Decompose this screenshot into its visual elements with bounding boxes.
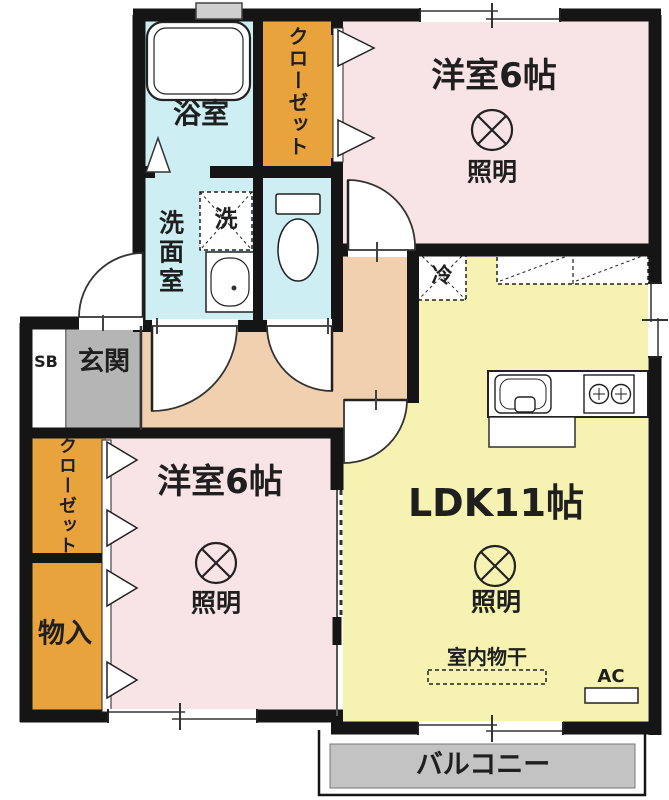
storage-label: 物入 — [38, 621, 92, 648]
ldk-light-label: 照明 — [471, 590, 521, 615]
corridor-arm-area — [340, 250, 412, 362]
shoe-box-label: SB — [34, 354, 58, 370]
ac-unit — [585, 688, 638, 703]
floorplan: 洋室6帖 照明 洋室6帖 照明 LDK11帖 照明 浴室 洗面室 洗 冷 クロー… — [0, 0, 669, 800]
ac-label: AC — [597, 668, 624, 686]
washer-label: 洗 — [215, 209, 238, 232]
upper-cabinets — [497, 252, 648, 284]
balcony-label: バルコニー — [416, 752, 550, 779]
indoor-drying-label: 室内物干 — [447, 647, 527, 667]
entrance-door — [79, 253, 143, 317]
bathtub — [147, 22, 250, 100]
bedroom-top-light-label: 照明 — [467, 160, 517, 185]
fridge-label: 冷 — [432, 266, 453, 287]
bedroom-left-light-label: 照明 — [191, 591, 241, 616]
bathroom-vent — [196, 3, 242, 19]
bedroom-left-label: 洋室6帖 — [157, 465, 283, 499]
counter-return — [489, 417, 575, 447]
closet-left-label: クローゼット — [57, 436, 75, 556]
toilet-fixture — [276, 194, 320, 281]
entrance-area — [66, 326, 140, 432]
bedroom-top-label: 洋室6帖 — [431, 59, 557, 93]
closet-top-label: クローゼット — [287, 26, 307, 158]
washroom-label: 洗面室 — [158, 210, 183, 297]
bathroom-label: 浴室 — [173, 100, 229, 128]
entrance-label: 玄関 — [78, 349, 130, 375]
ldk-label: LDK11帖 — [408, 484, 584, 522]
washroom-sink — [206, 252, 254, 312]
floorplan-drawing — [0, 0, 669, 800]
kitchen-faucet — [515, 397, 535, 412]
partition-bedroom2-ldk — [337, 428, 341, 716]
